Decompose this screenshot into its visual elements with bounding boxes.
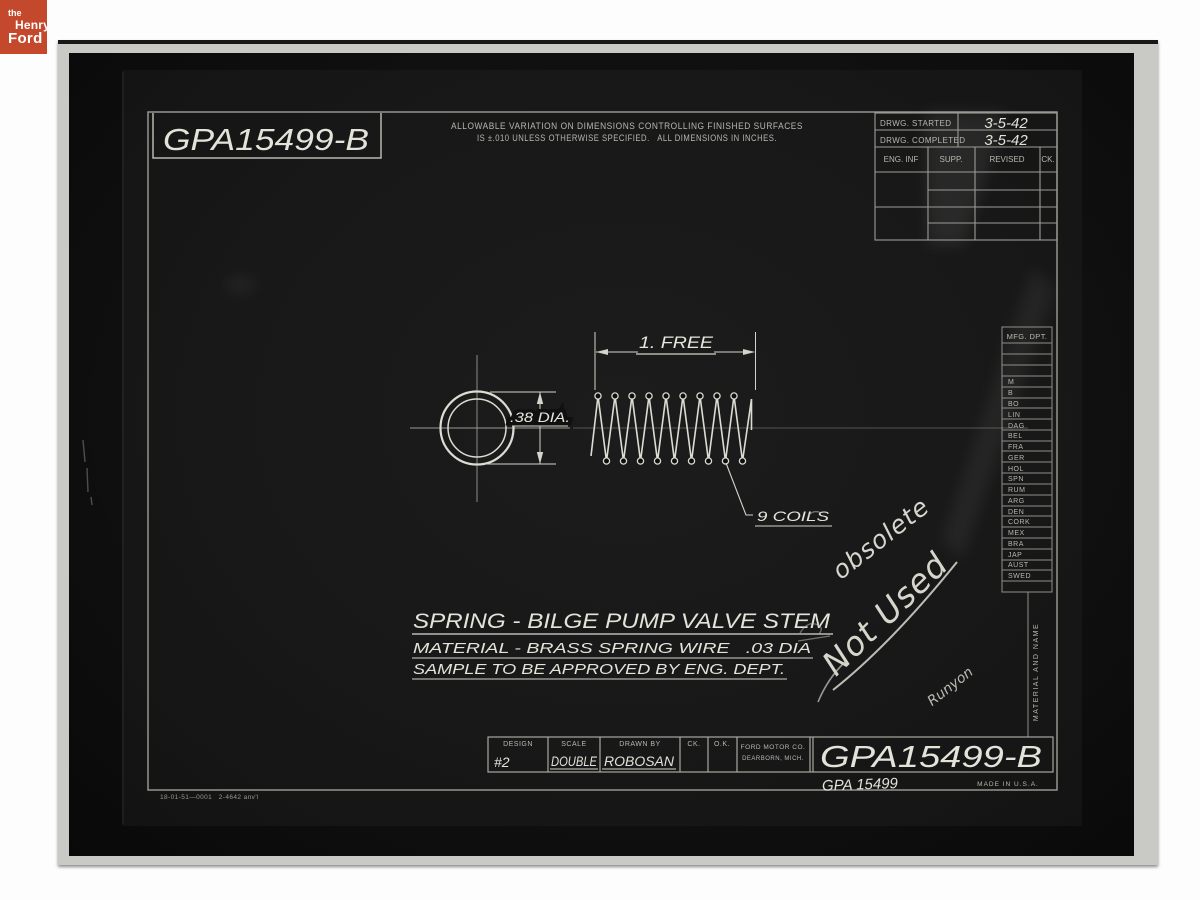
tolerance-note-line1: ALLOWABLE VARIATION ON DIMENSIONS CONTRO… <box>451 121 803 131</box>
material-and-name-label: MATERIAL AND NAME <box>1033 623 1040 721</box>
coils-label: 9 COILS <box>757 508 830 524</box>
mfg-entry: FRA <box>1008 444 1024 451</box>
mfg-entry: GER <box>1008 455 1025 462</box>
top-drawing-number: GPA15499-B <box>163 122 369 157</box>
part-title-notes: SPRING - BILGE PUMP VALVE STEM MATERIAL … <box>412 610 833 679</box>
sample-note: SAMPLE TO BE APPROVED BY ENG. DEPT. <box>413 662 785 678</box>
made-in-usa: MADE IN U.S.A. <box>977 781 1039 788</box>
free-length-text: 1. FREE <box>639 333 714 352</box>
part-title: SPRING - BILGE PUMP VALVE STEM <box>413 610 831 633</box>
mfg-entry: JAP <box>1008 552 1022 559</box>
mfg-entry: AUST <box>1008 562 1029 569</box>
mfg-entry: CORK <box>1008 519 1030 526</box>
form-code: 18-01-51—0001 2-4642 anv'l <box>160 794 259 801</box>
film-scratch <box>83 440 92 505</box>
mfg-entry: SWED <box>1008 573 1031 580</box>
mfg-entry: LIN <box>1008 412 1020 419</box>
drwg-started-value: 3-5-42 <box>984 115 1028 132</box>
mfg-entry: HOL <box>1008 466 1024 473</box>
mfg-entry: RUM <box>1008 487 1025 494</box>
mfg-entry: BO <box>1008 401 1019 408</box>
drawn-by-label: DRAWN BY <box>619 741 660 748</box>
col-eng-inf: ENG. INF <box>884 155 919 164</box>
tolerance-note-line2: IS ±.010 UNLESS OTHERWISE SPECIFIED. ALL… <box>477 133 777 143</box>
mfg-entry: DEN <box>1008 509 1024 516</box>
scale-label: SCALE <box>561 741 586 748</box>
scanned-photo-page: the Henry Ford GPA15499-B ALLOWABLE <box>0 0 1200 900</box>
design-value: #2 <box>494 754 510 770</box>
drwg-completed-label: DRWG. COMPLETED <box>880 136 965 145</box>
mfg-dpt-header: MFG. DPT. <box>1007 332 1048 341</box>
drwg-completed-value: 3-5-42 <box>984 132 1028 149</box>
handwritten-drawing-number: GPA 15499 <box>822 775 899 795</box>
dia-dimension-text: .38 DIA. <box>510 410 570 425</box>
col-revised: REVISED <box>989 155 1024 164</box>
block-drawing-number: GPA15499-B <box>820 739 1042 774</box>
drawn-by-value: ROBOSAN <box>604 753 675 769</box>
drawing-overlay: GPA15499-B ALLOWABLE VARIATION ON DIMENS… <box>0 0 1200 900</box>
material-note: MATERIAL - BRASS SPRING WIRE .03 DIA <box>413 641 811 657</box>
ok-label: O.K. <box>714 741 730 748</box>
mfg-entry: B <box>1008 390 1013 397</box>
company-name: FORD MOTOR CO. <box>741 744 806 751</box>
mfg-entry: MEX <box>1008 530 1025 537</box>
mfg-entry: BRA <box>1008 541 1024 548</box>
mfg-entry: M <box>1008 379 1014 386</box>
drwg-started-label: DRWG. STARTED <box>880 119 951 128</box>
mfg-entry: BEL <box>1008 433 1023 440</box>
design-label: DESIGN <box>503 741 533 748</box>
company-city: DEARBORN, MICH. <box>742 756 804 762</box>
scale-value: DOUBLE <box>551 753 598 769</box>
mfg-entry: DAG <box>1008 423 1025 430</box>
col-ck: CK. <box>1041 155 1054 164</box>
ck-label: CK. <box>687 741 700 748</box>
mfg-entry: ARG <box>1008 498 1025 505</box>
col-supp: SUPP. <box>940 155 963 164</box>
mfg-entry: SPN <box>1008 476 1024 483</box>
